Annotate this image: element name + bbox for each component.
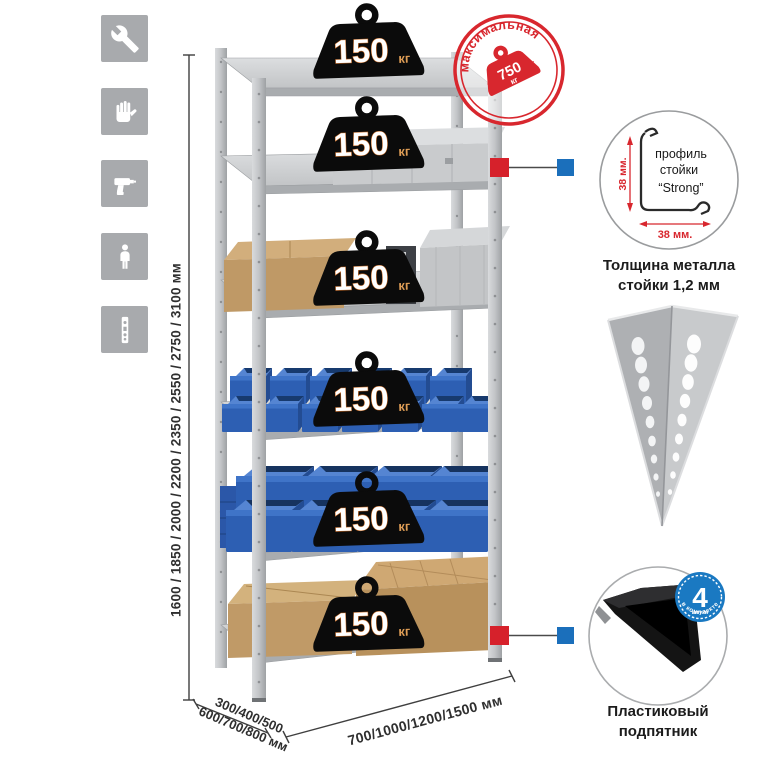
plastic-foot-detail: 4 штуки в комплекте <box>585 562 740 712</box>
foot-caption: Пластиковый подпятник <box>583 702 733 743</box>
svg-text:150: 150 <box>333 258 389 297</box>
product-infographic: 150 кг 150 кг 150 кг 150 кг 150 кг 150 к… <box>0 0 765 765</box>
svg-text:кг: кг <box>398 399 411 414</box>
svg-text:кг: кг <box>398 278 411 293</box>
load-badge-2: 150 кг <box>311 98 425 172</box>
svg-text:150: 150 <box>333 379 389 418</box>
profile-horizontal-dim-text: 38 мм. <box>658 229 693 241</box>
load-badge-1: 150 кг <box>311 5 425 79</box>
profile-callout-connector <box>490 158 574 177</box>
svg-text:стойки: стойки <box>660 163 698 177</box>
svg-text:150: 150 <box>333 124 389 163</box>
svg-text:кг: кг <box>398 144 411 159</box>
profile-vertical-dim-text: 38 мм. <box>617 157 629 190</box>
svg-text:кг: кг <box>398 624 411 639</box>
corner-post-image <box>598 298 748 533</box>
included-count-badge: 4 штуки в комплекте <box>675 572 725 622</box>
svg-text:150: 150 <box>333 499 389 538</box>
svg-text:150: 150 <box>333 31 389 70</box>
svg-text:кг: кг <box>398 51 411 66</box>
post-profile-detail: 38 мм. 38 мм. профиль стойки “Strong” <box>595 106 745 256</box>
svg-text:150: 150 <box>333 604 389 643</box>
load-badge-4: 150 кг <box>311 353 425 427</box>
foot-callout-connector <box>490 626 574 645</box>
profile-caption: Толщина металла стойки 1,2 мм <box>589 256 749 297</box>
height-dimension-line <box>183 55 195 700</box>
svg-text:“Strong”: “Strong” <box>658 181 703 195</box>
svg-text:профиль: профиль <box>655 147 707 161</box>
height-dimension-label: 1600 / 1850 / 2000 / 2200 / 2350 / 2550 … <box>169 263 184 617</box>
svg-text:кг: кг <box>398 519 411 534</box>
